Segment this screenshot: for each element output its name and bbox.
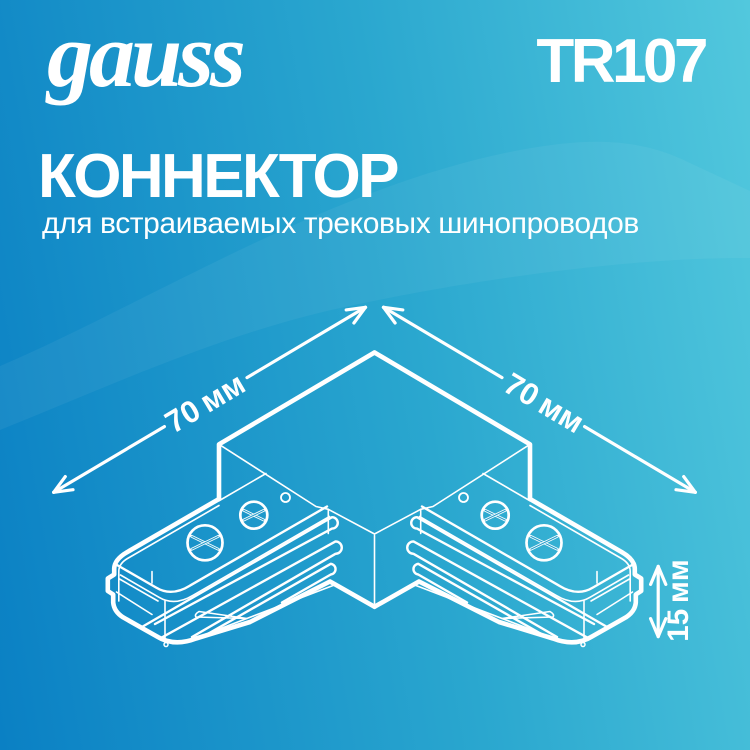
svg-text:70 мм: 70 мм <box>498 366 590 440</box>
svg-text:70 мм: 70 мм <box>159 366 251 440</box>
svg-text:15 мм: 15 мм <box>662 559 695 641</box>
